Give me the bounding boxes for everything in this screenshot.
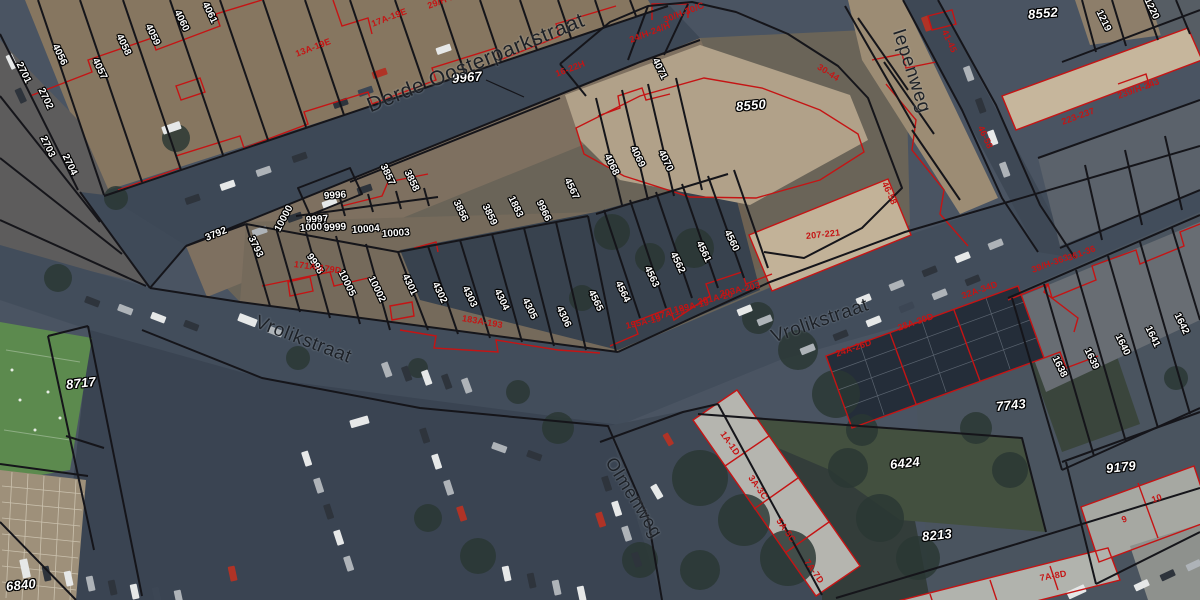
parcel-label: 4070 [656, 149, 675, 173]
parcel-label: 9997 [306, 214, 329, 226]
address-range-label: 28A-30D [897, 312, 935, 333]
parcel-label: 2701 [14, 61, 33, 85]
address-range-label: 3A-3C [746, 474, 769, 501]
address-range-label: 24/H-24/H [628, 21, 671, 45]
address-range-label: 5A-5C [774, 517, 797, 544]
parcel-label: 3857 [378, 163, 397, 187]
address-range-label: 46-58 [976, 125, 994, 151]
address-range-label: 183A-193 [461, 314, 503, 330]
address-range-label: 30-44 [816, 63, 841, 83]
parcel-label: 3858 [402, 169, 421, 193]
parcel-label: 10000 [274, 204, 296, 233]
parcel-label: 8552 [1027, 5, 1058, 21]
map-canvas[interactable]: 2701270227032704405640574058405940604061… [0, 0, 1200, 600]
parcel-label: 4560 [722, 229, 741, 253]
parcel-label: 3793 [246, 235, 265, 259]
parcel-label: 1638 [1050, 355, 1069, 379]
parcel-label: 4564 [613, 280, 632, 304]
address-range-label: 1A-1D [718, 430, 741, 457]
address-range-label: 207-221 [806, 228, 841, 241]
parcel-label: 1641 [1143, 325, 1162, 349]
parcel-label: 4562 [668, 251, 687, 275]
parcel-label: 8213 [921, 527, 952, 543]
parcel-label: 4060 [172, 9, 191, 33]
parcel-label: 4059 [143, 23, 162, 47]
parcel-label: 1642 [1172, 312, 1191, 336]
address-range-label: 7A-8D [1039, 569, 1067, 583]
parcel-label: 4301 [400, 273, 419, 297]
parcel-label: 9998 [304, 252, 325, 276]
address-range-label: 223-237 [1060, 106, 1095, 126]
parcel-label: 2702 [36, 87, 55, 111]
parcel-label: 3792 [204, 226, 228, 244]
address-range-label: 203A-203 [719, 281, 761, 299]
parcel-label: 2704 [60, 153, 79, 177]
parcel-label: 1219 [1094, 9, 1113, 33]
address-range-label: 10 [1150, 493, 1163, 505]
parcel-label: 4056 [50, 43, 69, 67]
address-range-label: 29/H-29/H [426, 0, 469, 11]
parcel-label: 1220 [1142, 0, 1161, 21]
address-range-label: 16-22H [554, 59, 586, 78]
parcel-label: 2703 [38, 135, 57, 159]
parcel-label: 7743 [995, 397, 1026, 413]
parcel-label: 4068 [602, 153, 621, 177]
parcel-label: 8717 [65, 375, 96, 391]
address-range-label: 13A-19E [294, 37, 332, 59]
parcel-label: 10005 [336, 269, 357, 298]
parcel-label: 10001 [300, 222, 328, 234]
parcel-label: 4071 [650, 57, 669, 81]
street-label: Iepenweg [889, 27, 934, 116]
address-range-label: 199A-19 [673, 298, 710, 315]
parcel-label: 4561 [694, 240, 713, 264]
parcel-label: 1640 [1113, 333, 1132, 357]
parcel-label: 8550 [735, 97, 766, 113]
parcel-label: 6424 [889, 455, 920, 471]
parcel-label: 4303 [460, 285, 479, 309]
address-range-label: 9 [1120, 514, 1128, 524]
street-label: Vrolikstraat [253, 313, 355, 367]
address-range-label: 39/H-363 [1030, 253, 1069, 275]
parcel-label: 4306 [554, 305, 573, 329]
street-label: Olmenweg [602, 454, 665, 541]
parcel-label: 1639 [1082, 347, 1101, 371]
parcel-label: 9179 [1105, 459, 1136, 475]
parcel-label: 4057 [90, 57, 109, 81]
parcel-label: 3856 [451, 199, 470, 223]
address-range-label: 197A-19 [649, 306, 686, 323]
street-label: Derde Oosterparkstraat [364, 10, 588, 117]
parcel-label: 4305 [520, 297, 539, 321]
address-range-label: 32A-34D [961, 280, 999, 301]
parcel-label: 10003 [382, 228, 410, 240]
parcel-label: 10004 [352, 224, 380, 236]
parcel-label: 9996 [324, 190, 347, 202]
parcel-label: 9999 [324, 222, 347, 234]
parcel-label: 4565 [586, 289, 605, 313]
parcel-label: 6840 [5, 577, 36, 593]
address-range-label: 24A-26D [835, 338, 873, 359]
address-range-label: 201A-20 [697, 290, 734, 307]
street-label: Vrolikstraat [769, 295, 871, 346]
parcel-label: 9966 [534, 199, 553, 223]
address-range-label: 361-36 [1066, 244, 1097, 262]
parcel-label: 3859 [480, 203, 499, 227]
parcel-label: 4304 [492, 288, 511, 312]
address-range-label: 30/H-30/C [662, 1, 705, 25]
parcel-label: 9967 [451, 69, 482, 85]
labels-layer: 2701270227032704405640574058405940604061… [0, 0, 1200, 600]
address-range-label: 46-58 [880, 181, 898, 207]
address-range-label: 239/H-243 [1116, 77, 1160, 100]
parcel-label: 4069 [628, 145, 647, 169]
address-range-label: 171A-179D [293, 260, 342, 276]
address-range-label: 7A-7D [802, 558, 825, 585]
parcel-label: 4567 [562, 177, 581, 201]
parcel-label: 4563 [642, 265, 661, 289]
address-range-label: 195A-19 [625, 314, 662, 331]
parcel-label: 10002 [366, 275, 387, 304]
address-range-label: 17A-19E [370, 7, 408, 29]
parcel-label: 1883 [506, 195, 525, 219]
parcel-label: 4058 [114, 33, 133, 57]
parcel-label: 4302 [430, 281, 449, 305]
address-range-label: 41-45 [940, 29, 958, 55]
parcel-label: 4061 [200, 1, 219, 25]
